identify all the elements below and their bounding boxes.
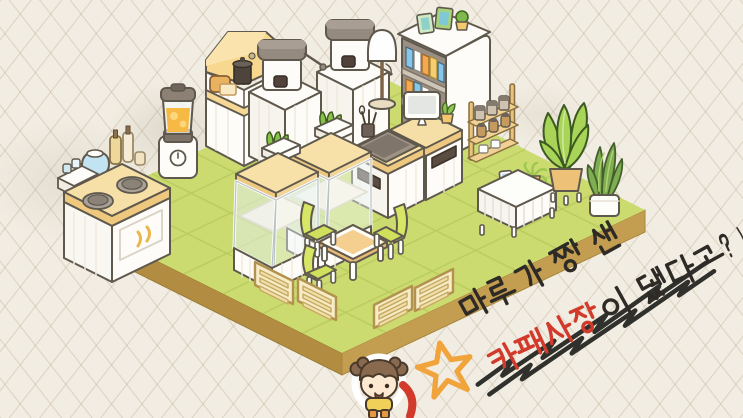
jar-shelf[interactable] [464,76,522,170]
fence-left-1[interactable] [252,257,296,309]
fence-right-2[interactable] [412,264,456,316]
espresso-machine-1 [258,40,326,90]
mini-plant [441,102,455,123]
fence-left-2[interactable] [295,273,339,325]
blender[interactable] [152,84,204,184]
red-accent-mark [395,383,423,418]
fence-right-1[interactable] [371,281,415,333]
picture-frame-1 [417,13,434,34]
snake-plant[interactable] [582,135,628,221]
picture-frame-2 [435,7,453,30]
chair-right[interactable] [372,200,412,264]
cactus-pot [456,11,468,30]
syrup-bottles [110,126,145,165]
